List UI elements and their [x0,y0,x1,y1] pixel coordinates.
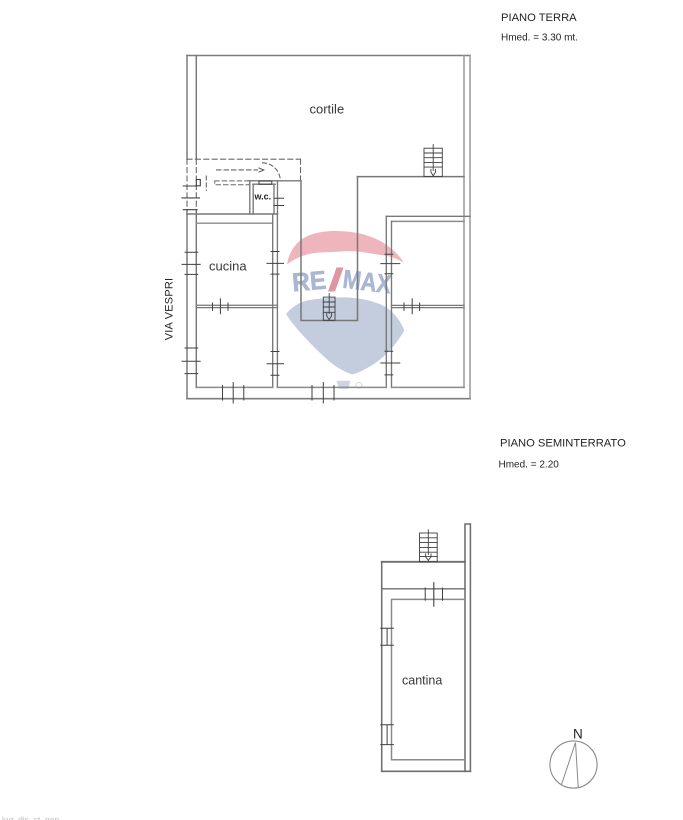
svg-text:cucina: cucina [209,259,247,274]
svg-text:RE: RE [291,265,327,298]
svg-text:lug. dis. st. gen.: lug. dis. st. gen. [2,815,62,820]
svg-text:Hmed. = 2.20: Hmed. = 2.20 [499,460,560,471]
svg-text:VIA VESPRI: VIA VESPRI [164,278,176,341]
svg-text:N: N [573,727,583,742]
svg-text:PIANO SEMINTERRATO: PIANO SEMINTERRATO [500,438,626,450]
svg-text:PIANO TERRA: PIANO TERRA [501,12,577,24]
svg-text:cortile: cortile [310,102,345,117]
svg-text:w.c.: w.c. [254,191,272,201]
svg-text:Hmed. = 3.30 mt.: Hmed. = 3.30 mt. [501,33,578,44]
svg-text:cantina: cantina [402,674,442,688]
